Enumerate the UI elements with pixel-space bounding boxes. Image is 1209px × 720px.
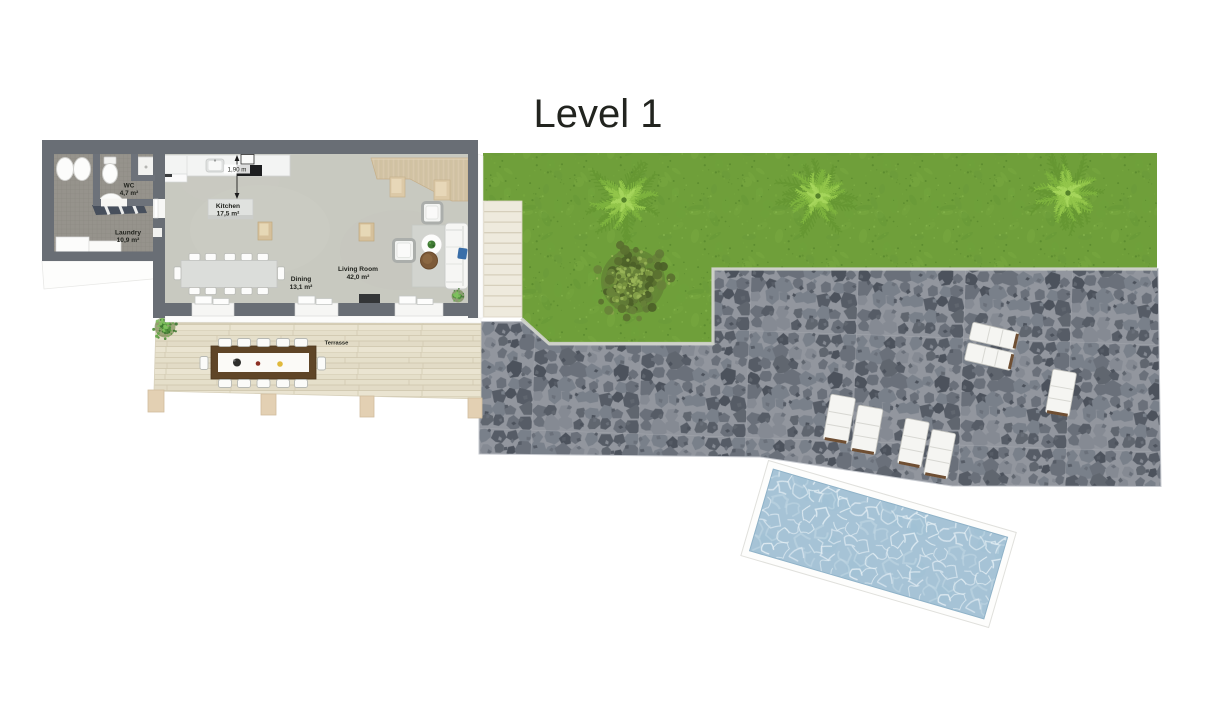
svg-text:Kitchen: Kitchen — [216, 203, 240, 210]
svg-text:17,5 m²: 17,5 m² — [217, 211, 241, 218]
svg-text:Laundry: Laundry — [115, 230, 141, 237]
svg-text:Level 1: Level 1 — [534, 92, 663, 136]
svg-text:WC: WC — [124, 183, 135, 190]
svg-text:10,9 m²: 10,9 m² — [117, 237, 141, 244]
svg-text:Terrasse: Terrasse — [325, 341, 350, 347]
svg-text:1,90 m: 1,90 m — [228, 167, 247, 174]
svg-text:4,7 m²: 4,7 m² — [120, 190, 138, 197]
svg-text:Dining: Dining — [291, 276, 312, 283]
svg-text:13,1 m²: 13,1 m² — [290, 284, 314, 291]
svg-text:Living Room: Living Room — [338, 266, 378, 273]
svg-text:42,0 m²: 42,0 m² — [347, 274, 371, 281]
